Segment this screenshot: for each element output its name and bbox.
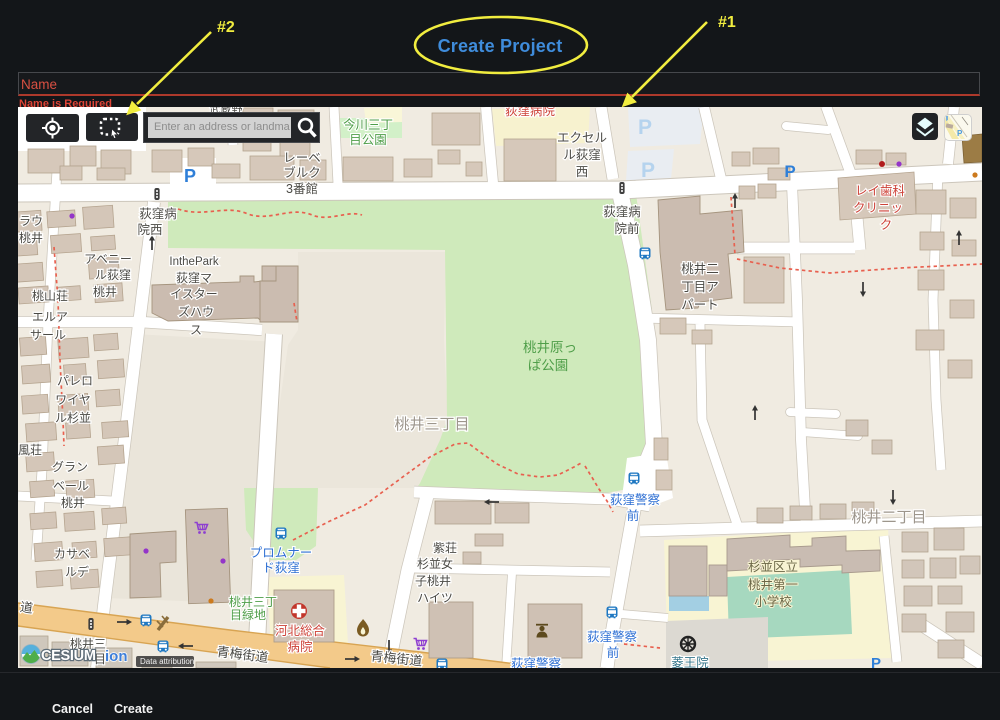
svg-text:ベール: ベール — [53, 479, 89, 493]
svg-text:桃井第一: 桃井第一 — [748, 577, 798, 592]
svg-text:荻窪警察: 荻窪警察 — [587, 629, 638, 644]
svg-text:イスター: イスター — [170, 287, 218, 301]
svg-text:クリニッ: クリニッ — [853, 201, 903, 215]
svg-text:杉並女: 杉並女 — [417, 556, 453, 571]
svg-text:プロムナー: プロムナー — [250, 546, 313, 560]
svg-text:桃井二丁目: 桃井二丁目 — [851, 509, 926, 526]
svg-text:#1: #1 — [718, 14, 736, 31]
svg-text:#2: #2 — [217, 19, 235, 36]
svg-text:ぱ公園: ぱ公園 — [528, 358, 569, 373]
svg-text:P: P — [957, 129, 963, 138]
svg-text:ズハウ: ズハウ — [178, 304, 214, 319]
svg-text:レーベ: レーベ — [283, 151, 321, 165]
svg-text:院西: 院西 — [137, 223, 162, 237]
svg-text:カサベ: カサベ — [54, 547, 90, 561]
svg-text:荻窪病: 荻窪病 — [139, 206, 177, 221]
svg-text:桃井: 桃井 — [61, 495, 85, 510]
svg-text:エクセル: エクセル — [557, 131, 607, 145]
svg-text:道: 道 — [19, 599, 34, 616]
svg-text:ル荻窪: ル荻窪 — [563, 147, 601, 162]
svg-text:ク: ク — [880, 218, 893, 232]
svg-text:丁目ア: 丁目ア — [681, 280, 719, 294]
svg-text:ス: ス — [190, 323, 202, 337]
svg-text:グラン: グラン — [52, 460, 88, 474]
svg-text:桃山荘: 桃山荘 — [32, 288, 68, 303]
svg-text:荻窪病: 荻窪病 — [603, 204, 641, 219]
svg-text:アベニー: アベニー — [84, 252, 132, 266]
svg-text:3番館: 3番館 — [286, 181, 318, 196]
svg-text:桃井: 桃井 — [93, 284, 117, 299]
svg-text:病院: 病院 — [287, 639, 313, 654]
svg-text:荻窪警察: 荻窪警察 — [511, 656, 562, 668]
svg-text:紫荘: 紫荘 — [433, 541, 457, 555]
svg-text:小学校: 小学校 — [754, 594, 792, 609]
svg-text:エルア: エルア — [32, 310, 68, 324]
svg-text:荻窪警察: 荻窪警察 — [610, 492, 661, 507]
svg-text:杉並区立: 杉並区立 — [748, 559, 798, 574]
svg-text:ion: ion — [105, 648, 128, 665]
svg-text:Data attribution: Data attribution — [140, 657, 194, 666]
svg-text:菱王院: 菱王院 — [671, 656, 709, 668]
svg-text:パート: パート — [681, 298, 719, 312]
svg-text:前: 前 — [627, 508, 640, 523]
svg-text:P: P — [638, 116, 652, 139]
svg-text:子桃井: 子桃井 — [415, 573, 451, 588]
svg-text:桃井原っ: 桃井原っ — [523, 340, 577, 355]
svg-text:桃井: 桃井 — [19, 230, 43, 245]
svg-text:ド荻窪: ド荻窪 — [262, 560, 300, 575]
svg-text:荻窪病院: 荻窪病院 — [505, 107, 556, 118]
svg-text:前: 前 — [607, 645, 620, 660]
svg-text:レイ歯科: レイ歯科 — [855, 184, 906, 198]
svg-text:P: P — [641, 159, 655, 182]
svg-text:風荘: 風荘 — [18, 443, 42, 457]
svg-text:ワイヤ: ワイヤ — [55, 393, 91, 407]
svg-text:ル荻窪: ル荻窪 — [95, 267, 131, 282]
svg-text:ルデ: ルデ — [65, 564, 89, 579]
svg-text:目緑地: 目緑地 — [230, 607, 266, 622]
svg-text:ル杉並: ル杉並 — [55, 411, 91, 425]
svg-text:パレロ: パレロ — [57, 374, 93, 388]
svg-text:InthePark: InthePark — [169, 256, 218, 268]
svg-text:桃井三丁: 桃井三丁 — [229, 594, 277, 609]
svg-text:P: P — [871, 655, 881, 668]
svg-text:P: P — [184, 166, 196, 186]
svg-text:院前: 院前 — [614, 221, 639, 236]
svg-text:ハイツ: ハイツ — [417, 591, 453, 605]
svg-text:CESIUM: CESIUM — [41, 648, 96, 664]
svg-text:西: 西 — [576, 165, 589, 179]
svg-text:今川三丁: 今川三丁 — [343, 117, 393, 132]
svg-text:桃井二: 桃井二 — [681, 261, 719, 276]
svg-text:荻窪マ: 荻窪マ — [176, 270, 212, 285]
svg-text:ラウ: ラウ — [19, 214, 43, 228]
svg-text:目公園: 目公園 — [349, 133, 387, 147]
svg-text:河北総合: 河北総合 — [275, 623, 326, 638]
svg-text:桃井三丁目: 桃井三丁目 — [394, 416, 469, 433]
svg-text:サール: サール — [30, 328, 66, 342]
svg-text:ブルク: ブルク — [283, 165, 321, 180]
svg-text:P: P — [784, 162, 795, 181]
